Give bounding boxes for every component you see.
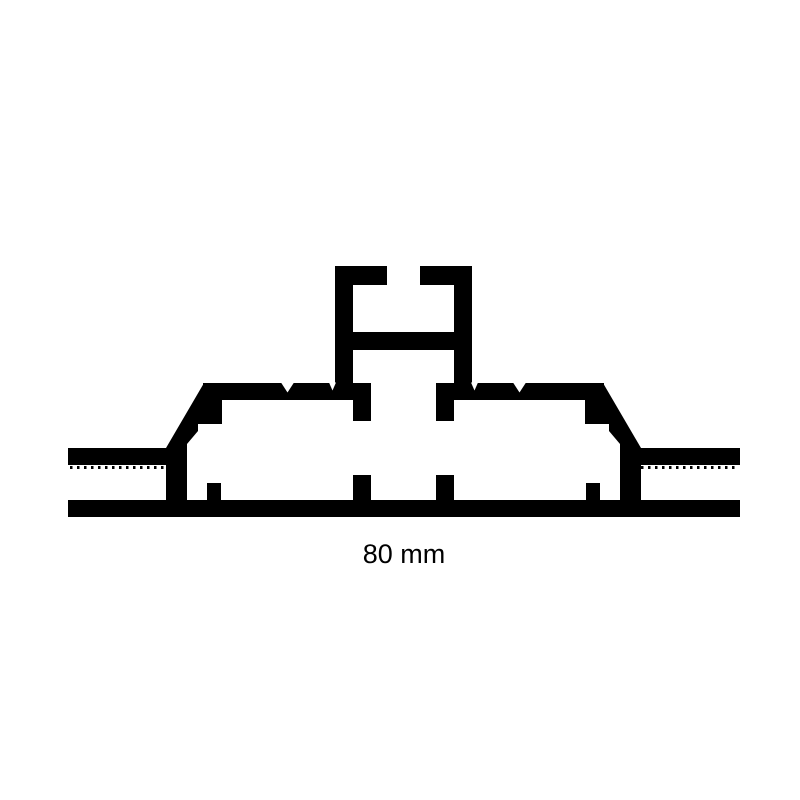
left-flange-top-wall <box>68 448 183 465</box>
body-sloped-walls <box>166 383 641 500</box>
channel-right-top-lip <box>420 266 472 285</box>
right-flange-top-wall <box>624 448 740 465</box>
slot-lip-right <box>436 383 454 421</box>
rib-center-left <box>353 475 371 501</box>
channel-left-top-lip <box>335 266 387 285</box>
rib-outer-left <box>207 483 221 501</box>
dimension-label: 80 mm <box>363 539 446 569</box>
slot-lip-left <box>353 383 371 421</box>
base-plate <box>68 500 740 517</box>
top-slot-channel <box>335 266 472 400</box>
right-sloped-wall <box>585 383 641 500</box>
internal-ribs <box>207 475 600 501</box>
side-flanges <box>68 448 740 465</box>
left-sloped-wall <box>166 383 222 500</box>
profile-ink <box>68 266 740 517</box>
extrusion-profile-cross-section-drawing: 80 mm <box>0 0 800 800</box>
rib-outer-right <box>586 483 600 501</box>
diagram-page: 80 mm <box>0 0 800 800</box>
body-top-wall <box>203 383 604 421</box>
channel-crossbar <box>335 332 472 350</box>
rib-center-right <box>436 475 454 501</box>
